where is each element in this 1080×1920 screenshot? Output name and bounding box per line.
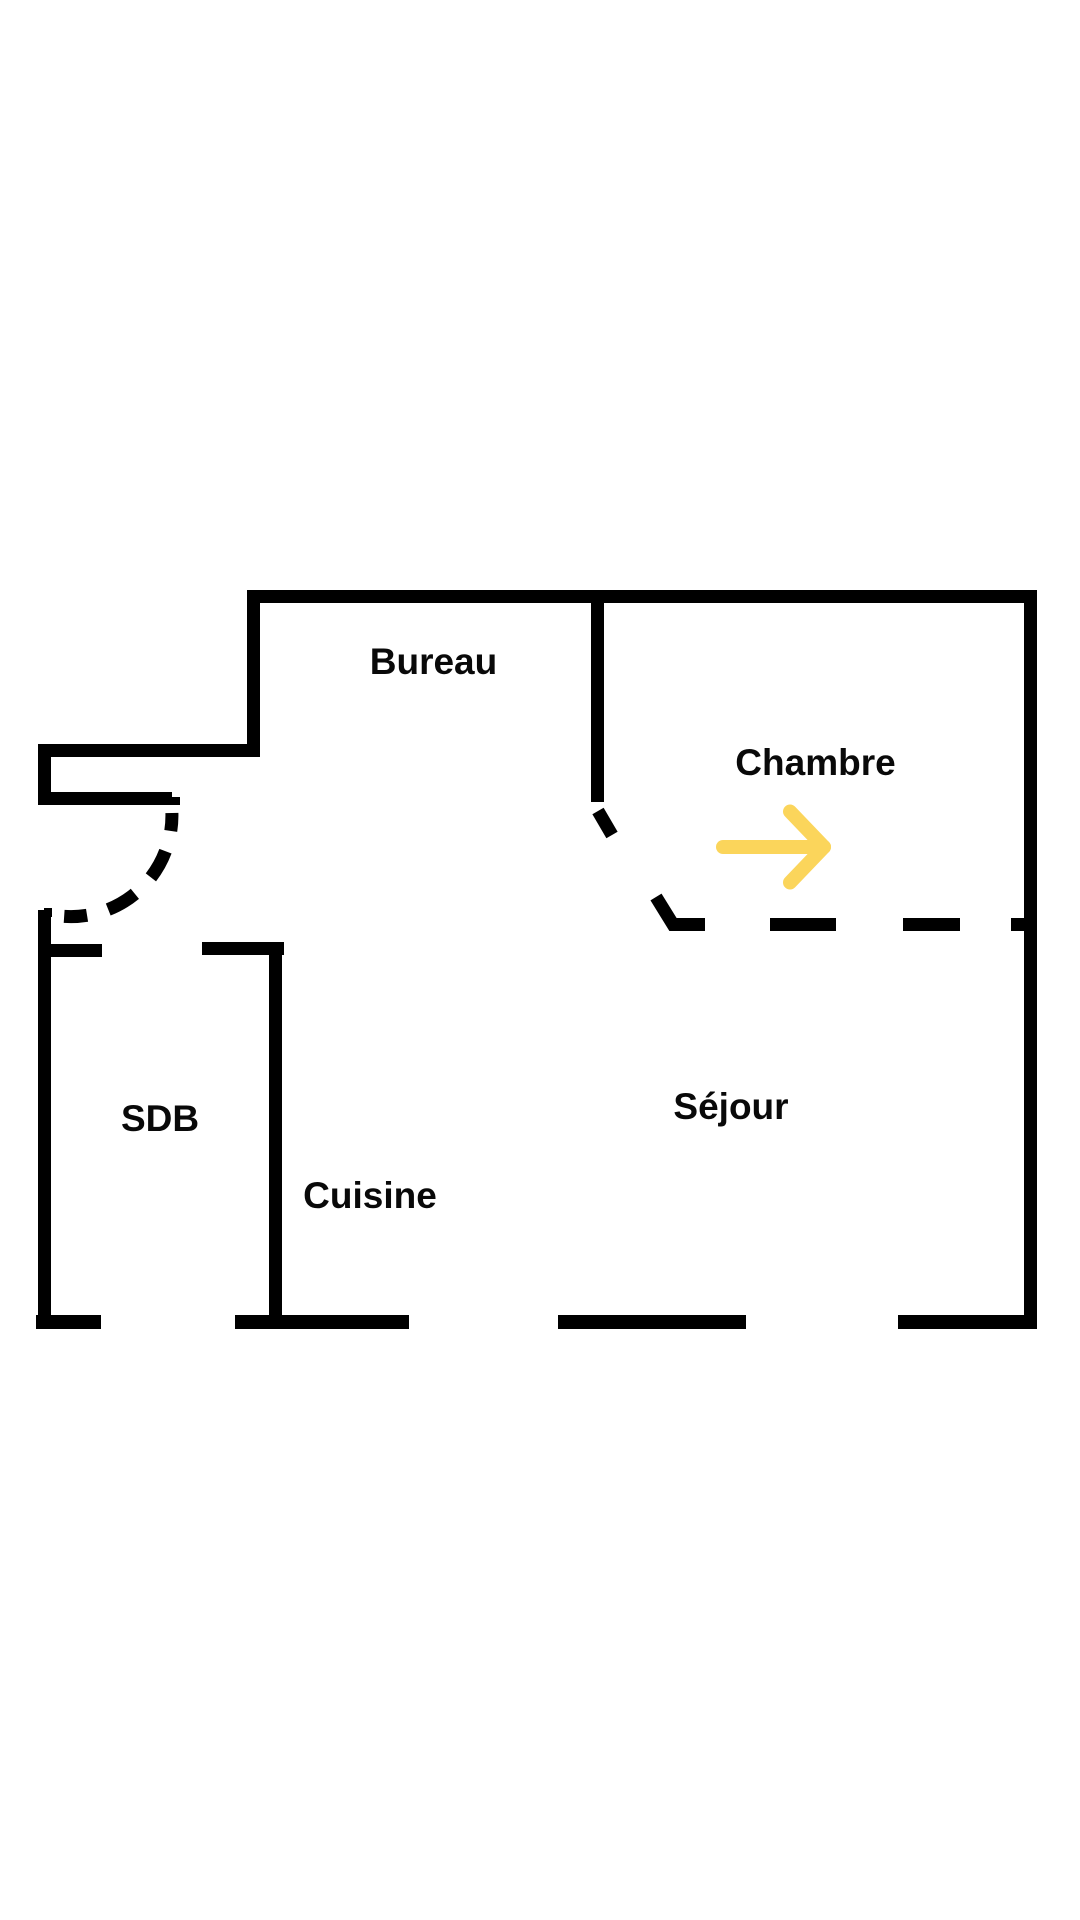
svg-text:Chambre: Chambre xyxy=(735,742,895,783)
svg-text:Bureau: Bureau xyxy=(370,641,497,682)
svg-text:SDB: SDB xyxy=(121,1098,199,1139)
svg-text:Cuisine: Cuisine xyxy=(303,1175,437,1216)
svg-text:Séjour: Séjour xyxy=(673,1086,788,1127)
